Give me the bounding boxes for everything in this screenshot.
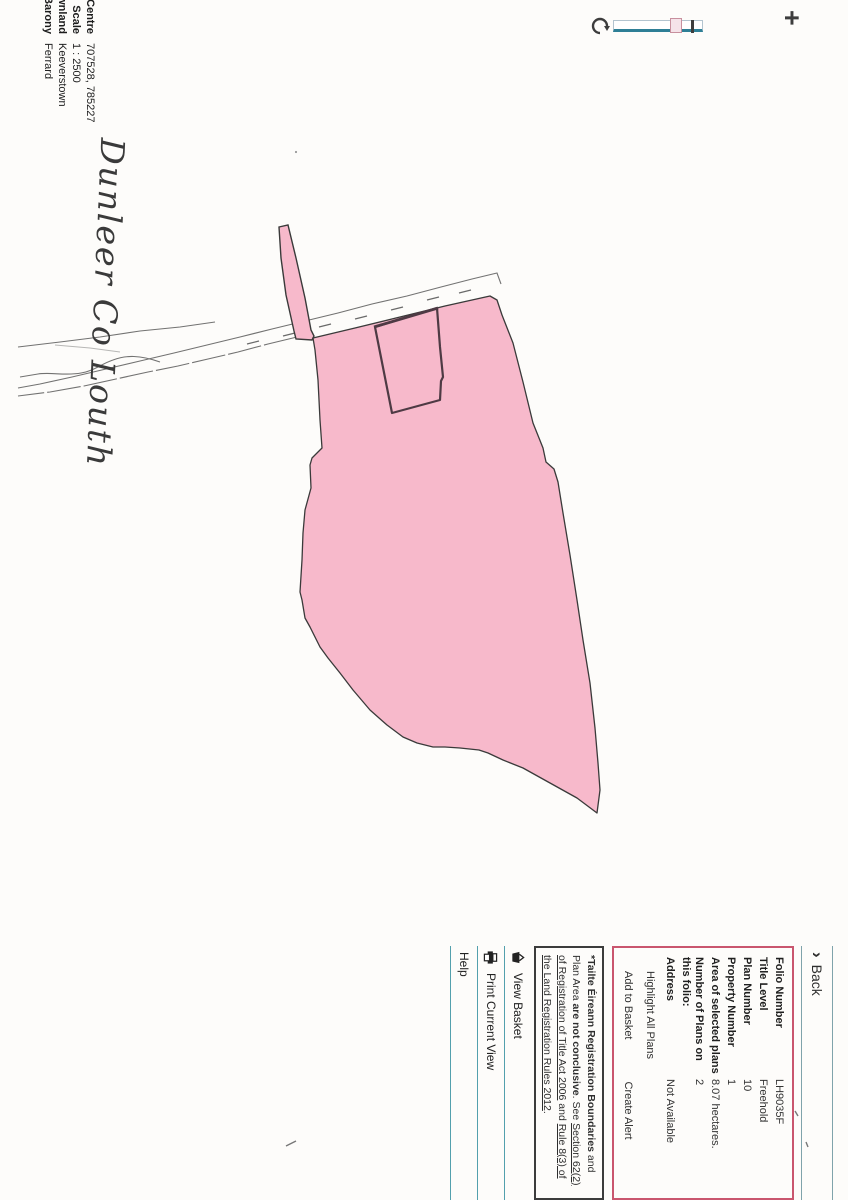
panel-menu: View Basket Print Current View Help bbox=[450, 946, 531, 1200]
property-number-value: 1 bbox=[724, 1079, 737, 1085]
area-value: 8.07 hectares. bbox=[708, 1079, 721, 1149]
info-panel: › Back Folio Number LH9035F Title Level … bbox=[427, 946, 842, 1200]
scale-label: Scale bbox=[69, 0, 83, 34]
plans-count-label: Number of Plans on this folio: bbox=[679, 957, 705, 1079]
create-alert-link[interactable]: Create Alert bbox=[622, 1082, 634, 1140]
townland-label: Townland bbox=[55, 0, 69, 34]
disclaimer-lead: *Tailte Éireann Registration Boundaries bbox=[585, 955, 597, 1152]
centre-label: Centre bbox=[83, 0, 97, 34]
disclaimer-text: . bbox=[542, 1111, 554, 1114]
back-button[interactable]: › Back bbox=[802, 946, 832, 1200]
add-to-basket-link[interactable]: Add to Basket bbox=[622, 971, 634, 1040]
plan-number-value: 10 bbox=[740, 1079, 753, 1091]
divider bbox=[801, 946, 802, 1200]
barony-value: Ferrard bbox=[41, 43, 55, 79]
folio-number-label: Folio Number bbox=[772, 957, 785, 1079]
view-basket-menu-item[interactable]: View Basket bbox=[504, 946, 531, 1200]
folio-number-value: LH9035F bbox=[772, 1079, 785, 1124]
refresh-icon[interactable] bbox=[590, 16, 610, 36]
folio-details-box: Folio Number LH9035F Title Level Freehol… bbox=[612, 946, 794, 1200]
disclaimer-bold: are not conclusive bbox=[571, 1003, 583, 1095]
folio-row: Number of Plans on this folio: 2 bbox=[679, 957, 705, 1189]
folio-row: Property Number 1 bbox=[724, 957, 737, 1189]
title-level-value: Freehold bbox=[756, 1079, 769, 1122]
folio-row: Title Level Freehold bbox=[756, 957, 769, 1189]
scanned-map-page: Centre 707528, 785227 Scale 1 : 2500 Tow… bbox=[0, 0, 848, 1200]
print-current-view-label: Print Current View bbox=[484, 973, 498, 1070]
print-current-view-menu-item[interactable]: Print Current View bbox=[477, 946, 504, 1200]
chevron-right-icon: › bbox=[811, 952, 823, 958]
folio-row: Folio Number LH9035F bbox=[772, 957, 785, 1189]
barony-label: Barony bbox=[41, 0, 55, 34]
help-label: Help bbox=[457, 952, 471, 977]
divider bbox=[832, 946, 833, 1200]
printer-icon bbox=[484, 950, 499, 965]
lane-strip-plan[interactable] bbox=[279, 225, 314, 340]
zoom-in-button[interactable]: + bbox=[780, 10, 804, 26]
area-label: Area of selected plans bbox=[708, 957, 721, 1079]
handwritten-annotation: Dunleer Co Louth bbox=[35, 138, 125, 353]
title-level-label: Title Level bbox=[756, 957, 769, 1079]
selected-folio-plan[interactable] bbox=[300, 296, 600, 813]
disclaimer-text: and bbox=[556, 1100, 568, 1123]
folio-row: Area of selected plans 8.07 hectares. bbox=[708, 957, 721, 1189]
back-label: Back bbox=[809, 965, 825, 996]
highlight-all-plans-link[interactable]: Highlight All Plans bbox=[644, 971, 656, 1189]
address-value: Not Available bbox=[663, 1079, 676, 1143]
basket-icon bbox=[511, 950, 526, 965]
zoom-control: + bbox=[578, 8, 806, 48]
folio-row: Address Not Available bbox=[663, 957, 676, 1189]
zoom-slider-thumb[interactable] bbox=[670, 18, 682, 33]
folio-actions: Add to Basket Create Alert bbox=[622, 957, 634, 1189]
plans-count-value: 2 bbox=[679, 1079, 705, 1085]
disclaimer-box: *Tailte Éireann Registration Boundaries … bbox=[534, 946, 604, 1200]
property-number-label: Property Number bbox=[724, 957, 737, 1079]
folio-row: Plan Number 10 bbox=[740, 957, 753, 1189]
disclaimer-text: . See bbox=[571, 1096, 583, 1123]
scale-value: 1 : 2500 bbox=[69, 43, 83, 83]
townland-value: Keeverstown bbox=[55, 43, 69, 107]
address-label: Address bbox=[663, 957, 676, 1079]
help-menu-item[interactable]: Help bbox=[450, 946, 477, 1200]
plan-number-label: Plan Number bbox=[740, 957, 753, 1079]
zoom-out-button[interactable] bbox=[691, 20, 694, 33]
centre-value: 707528, 785227 bbox=[83, 43, 97, 123]
zoom-slider-track[interactable] bbox=[613, 20, 703, 32]
view-basket-label: View Basket bbox=[511, 973, 525, 1039]
